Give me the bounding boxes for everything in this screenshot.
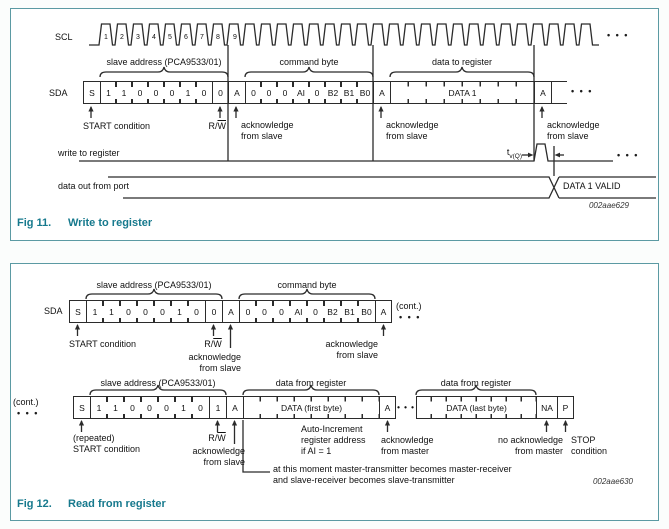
- addr-bit-cell: 0: [192, 396, 209, 419]
- cmd-bit-cell: 0: [261, 81, 277, 104]
- scl-label: SCL: [55, 32, 73, 42]
- rw-bit-cell: 1: [209, 396, 226, 419]
- cmd-bit-cell: 0: [309, 81, 325, 104]
- clock-number: 8: [213, 34, 223, 41]
- start-condition-label: START condition: [69, 339, 136, 349]
- sda-stub-cell: [551, 81, 567, 104]
- sda-label: SDA: [44, 306, 63, 316]
- data-to-register-brace-label: data to register: [402, 57, 522, 67]
- clock-number: 2: [117, 34, 127, 41]
- cmd-bit-cell: B2: [325, 81, 341, 104]
- ack-cell: A: [534, 81, 551, 104]
- clock-number: 4: [149, 34, 159, 41]
- command-byte-brace: [239, 289, 375, 299]
- cmd-bit-cell: B2: [324, 300, 341, 323]
- stop-arrow-icon: [563, 420, 568, 432]
- data1-valid-label: DATA 1 VALID: [563, 181, 621, 191]
- ack-cell: A: [228, 81, 245, 104]
- addr-bit-cell: 1: [86, 300, 103, 323]
- addr-bit-cell: 0: [164, 81, 180, 104]
- addr-bit-cell: 1: [171, 300, 188, 323]
- addr-bit-cell: 0: [141, 396, 158, 419]
- rw-bar: W: [217, 433, 226, 443]
- rw-arrow-icon: [215, 420, 220, 432]
- no-ack-arrow-icon: [544, 420, 549, 432]
- ack-cell: A: [226, 396, 243, 419]
- ack2-arrow-icon: [378, 106, 383, 118]
- clock-number: 3: [133, 34, 143, 41]
- fig12-write-row: S 1 1 0 0 0 1 0 0 A 0 0 0 AI 0 B2 B1 B0 …: [69, 300, 392, 323]
- ack-cell: A: [375, 300, 392, 323]
- data-from-register-brace-label: data from register: [416, 378, 536, 388]
- rw-arrow-icon: [217, 106, 222, 118]
- rw-label: R/W: [186, 121, 226, 131]
- auto-increment-label: Auto-Increment register address if AI = …: [301, 424, 366, 457]
- ack-from-slave-label: acknowledge from slave: [141, 352, 241, 374]
- addr-bit-cell: 1: [103, 300, 120, 323]
- tvq-label: tv(Q): [482, 147, 522, 160]
- rw-prefix: R/: [208, 433, 217, 443]
- addr-bit-cell: 1: [175, 396, 192, 419]
- data-from-register-brace-label: data from register: [251, 378, 371, 388]
- cmd-bit-cell: B1: [341, 81, 357, 104]
- rw-bar: W: [213, 339, 222, 349]
- fig11-panel: SCL 1 2 3 4 5 6 7 8 9 • • • slave addres…: [10, 8, 659, 241]
- rw-bit-cell: 0: [205, 300, 222, 323]
- cmd-bit-cell: B1: [341, 300, 358, 323]
- addr-bit-cell: 1: [90, 396, 107, 419]
- cmd-bit-cell: B0: [358, 300, 375, 323]
- rw-label: R/W: [193, 339, 233, 349]
- clock-number: 7: [197, 34, 207, 41]
- repeated-start-label: (repeated) START condition: [73, 433, 140, 455]
- addr-bit-cell: 0: [132, 81, 148, 104]
- tvq-arrowhead-icon: [528, 153, 534, 158]
- start-cell: S: [83, 81, 100, 104]
- ack-from-slave-label: acknowledge from slave: [278, 339, 378, 361]
- addr-bit-cell: 0: [158, 396, 175, 419]
- figure-code: 002aae630: [533, 477, 633, 486]
- sda-continuation-dots: • • •: [571, 86, 593, 96]
- addr-bit-cell: 0: [196, 81, 212, 104]
- nack-cell: NA: [536, 396, 557, 419]
- moment-note: at this moment master-transmitter become…: [273, 464, 512, 486]
- clock-number: 1: [101, 34, 111, 41]
- slave-address-brace-label: slave address (PCA9533/01): [78, 378, 238, 388]
- rw-arrow-icon: [211, 324, 216, 336]
- rw-bar: W: [218, 121, 227, 131]
- command-byte-brace-label: command byte: [249, 57, 369, 67]
- start-arrow-icon: [88, 106, 93, 118]
- figure-code: 002aae629: [529, 201, 629, 210]
- rw-prefix: R/: [209, 121, 218, 131]
- tvq-left-arrowhead-icon: [555, 153, 561, 158]
- scl-continuation-dots: • • •: [607, 30, 629, 40]
- cmd-bit-cell: 0: [277, 81, 293, 104]
- clock-number: 6: [181, 34, 191, 41]
- cmd-bit-cell: 0: [307, 300, 324, 323]
- fig12-panel: slave address (PCA9533/01) command byte …: [10, 263, 659, 521]
- tvq-subscript: v(Q): [509, 153, 522, 160]
- command-byte-brace: [245, 67, 373, 77]
- continuation-label: (cont.): [13, 397, 39, 407]
- ack3-arrow-icon: [539, 106, 544, 118]
- ack-from-slave-label: acknowledge from slave: [547, 120, 600, 142]
- write-to-register-waveform: [79, 144, 613, 161]
- addr-bit-cell: 0: [137, 300, 154, 323]
- cmd-bit-cell: 0: [245, 81, 261, 104]
- start-arrow-icon: [75, 324, 80, 336]
- ack-cell: A: [373, 81, 390, 104]
- slave-address-brace: [86, 289, 222, 299]
- cmd-bit-cell: AI: [293, 81, 309, 104]
- ack-from-master-label: acknowledge from master: [381, 435, 434, 457]
- data-out-from-port-label: data out from port: [58, 181, 129, 191]
- ack2-arrow-icon: [381, 324, 386, 336]
- rw-prefix: R/: [204, 339, 213, 349]
- cmd-bit-cell: 0: [239, 300, 256, 323]
- ack-cell: A: [222, 300, 239, 323]
- datasheet-page: { "shared": { "sda_label": "SDA", "s": "…: [0, 0, 669, 529]
- slave-address-brace-label: slave address (PCA9533/01): [84, 57, 244, 67]
- addr-bit-cell: 0: [124, 396, 141, 419]
- ack-from-slave-label: acknowledge from slave: [145, 446, 245, 468]
- addr-bit-cell: 1: [100, 81, 116, 104]
- data-last-cell: DATA (last byte): [416, 396, 536, 419]
- cmd-bit-cell: 0: [273, 300, 290, 323]
- addr-bit-cell: 0: [148, 81, 164, 104]
- ack-from-slave-label: acknowledge from slave: [241, 120, 294, 142]
- data-first-cell: DATA (first byte): [243, 396, 379, 419]
- write-to-register-label: write to register: [58, 148, 120, 158]
- addr-bit-cell: 1: [116, 81, 132, 104]
- moment-note-connector: [243, 420, 270, 472]
- continuation-dots: • • •: [17, 408, 39, 418]
- fig12-read-row: S 1 1 0 0 0 1 0 1 A DATA (first byte) A …: [73, 396, 574, 419]
- row-continuation-dots: • • •: [396, 396, 416, 419]
- fig11-sda-row: S 1 1 0 0 0 1 0 0 A 0 0 0 AI 0 B2 B1 B0 …: [83, 81, 567, 104]
- stop-condition-label: STOP condition: [571, 435, 607, 457]
- command-byte-brace-label: command byte: [247, 280, 367, 290]
- start-cell: S: [73, 396, 90, 419]
- addr-bit-cell: 0: [188, 300, 205, 323]
- addr-bit-cell: 1: [107, 396, 124, 419]
- clock-number: 5: [165, 34, 175, 41]
- repeated-start-arrow-icon: [79, 420, 84, 432]
- fig12-caption-number: Fig 12.: [17, 498, 52, 510]
- cmd-bit-cell: 0: [256, 300, 273, 323]
- ack-from-slave-label: acknowledge from slave: [386, 120, 439, 142]
- slave-address-brace: [100, 67, 228, 77]
- continuation-dots: • • •: [399, 312, 421, 322]
- continuation-label: (cont.): [396, 301, 422, 311]
- ack-master-arrow-icon: [385, 420, 390, 432]
- stop-cell: P: [557, 396, 574, 419]
- start-cell: S: [69, 300, 86, 323]
- addr-bit-cell: 0: [154, 300, 171, 323]
- write-continuation-dots: • • •: [617, 150, 639, 160]
- data1-cell: DATA 1: [390, 81, 534, 104]
- no-ack-from-master-label: no acknowledge from master: [463, 435, 563, 457]
- cmd-bit-cell: B0: [357, 81, 373, 104]
- cmd-bit-cell: AI: [290, 300, 307, 323]
- start-condition-label: START condition: [83, 121, 150, 131]
- addr-bit-cell: 1: [180, 81, 196, 104]
- rw-label: R/W: [197, 433, 237, 443]
- ack1-arrow-icon: [233, 106, 238, 118]
- ack-cell: A: [379, 396, 396, 419]
- fig12-caption-title: Read from register: [68, 498, 166, 510]
- fig11-caption-title: Write to register: [68, 217, 152, 229]
- fig11-caption-number: Fig 11.: [17, 217, 51, 229]
- data-to-register-brace: [390, 67, 534, 77]
- addr-bit-cell: 0: [120, 300, 137, 323]
- sda-label: SDA: [49, 88, 68, 98]
- rw-bit-cell: 0: [212, 81, 228, 104]
- slave-address-brace-label: slave address (PCA9533/01): [74, 280, 234, 290]
- clock-number: 9: [230, 34, 240, 41]
